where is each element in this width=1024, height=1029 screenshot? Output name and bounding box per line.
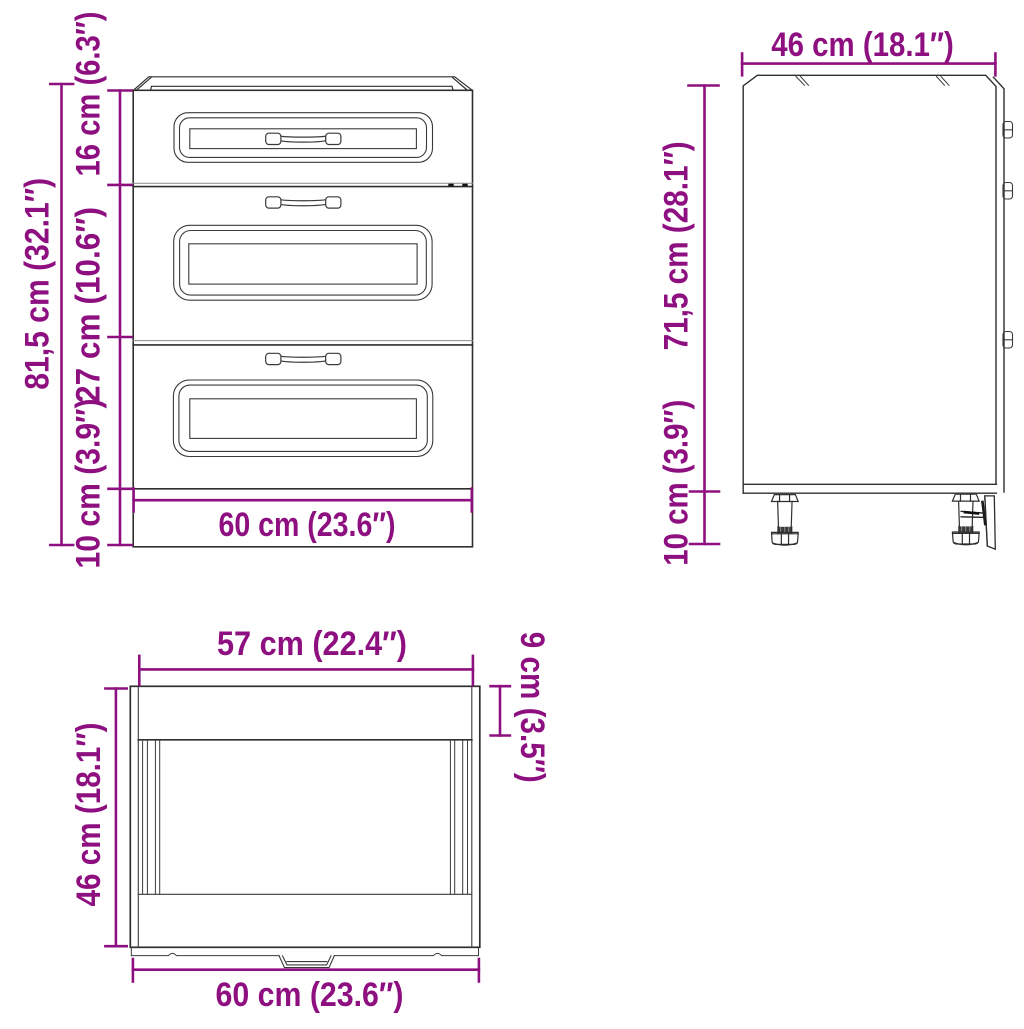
svg-text:60 cm (23.6″): 60 cm (23.6″) <box>216 976 404 1014</box>
svg-text:60 cm (23.6″): 60 cm (23.6″) <box>219 506 396 544</box>
svg-text:81,5 cm (32.1″): 81,5 cm (32.1″) <box>19 178 57 390</box>
svg-text:10 cm (3.9″): 10 cm (3.9″) <box>70 399 108 569</box>
svg-text:46 cm (18.1″): 46 cm (18.1″) <box>771 26 954 64</box>
svg-text:9 cm (3.5″): 9 cm (3.5″) <box>513 632 551 783</box>
svg-text:71,5 cm (28.1″): 71,5 cm (28.1″) <box>658 141 696 350</box>
svg-text:16 cm (6.3″): 16 cm (6.3″) <box>70 12 108 177</box>
svg-text:57 cm (22.4″): 57 cm (22.4″) <box>217 625 407 663</box>
svg-text:27 cm (10.6″): 27 cm (10.6″) <box>70 207 108 403</box>
svg-text:46 cm (18.1″): 46 cm (18.1″) <box>70 723 108 907</box>
svg-text:10 cm (3.9″): 10 cm (3.9″) <box>658 400 696 566</box>
